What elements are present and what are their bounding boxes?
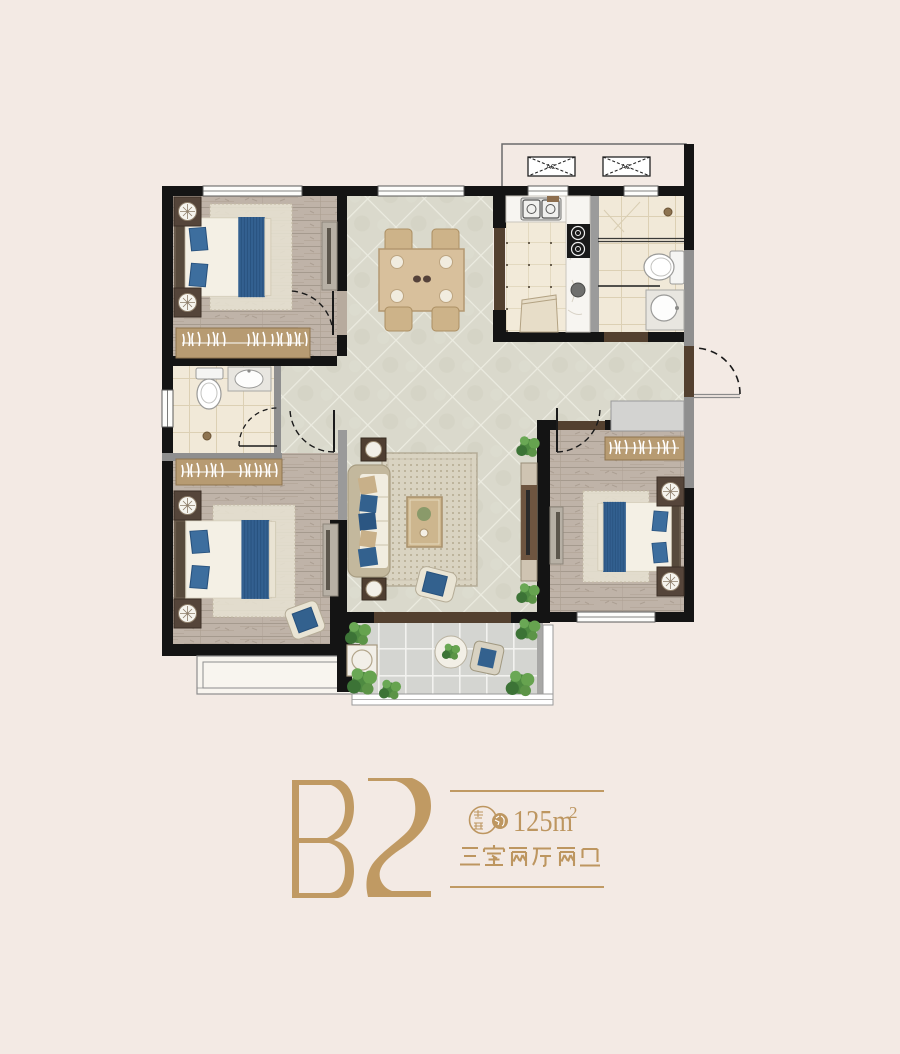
svg-text:AC: AC	[546, 164, 556, 171]
svg-text:AC: AC	[621, 164, 631, 171]
svg-text:125m: 125m	[513, 803, 573, 838]
svg-text:2: 2	[569, 803, 578, 822]
